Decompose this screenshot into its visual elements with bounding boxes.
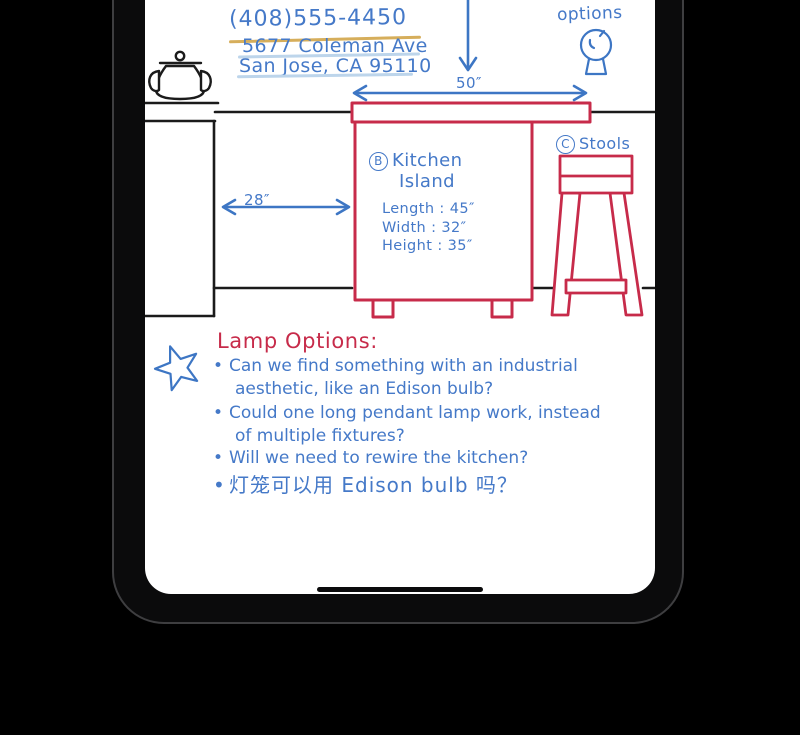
star-icon	[155, 346, 197, 390]
island-height: Height : 35″	[382, 237, 475, 256]
note-text: of multiple fixtures?	[235, 426, 405, 446]
island-width: Width : 32″	[382, 219, 475, 238]
stools-label: CStools	[556, 134, 630, 154]
bullet-marker: •	[213, 448, 229, 468]
stool-sketch	[552, 156, 642, 315]
island-label: BKitchen Island	[369, 150, 462, 192]
island-tag: B	[369, 152, 388, 171]
note-text: Will we need to rewire the kitchen?	[229, 448, 528, 468]
note-text: Could one long pendant lamp work, instea…	[229, 403, 601, 423]
lamp-note-line: •Could one long pendant lamp work, inste…	[213, 403, 601, 423]
stools-label-text: Stools	[579, 134, 630, 153]
lamp-note-line: •灯笼可以用 Edison bulb 吗？	[213, 469, 518, 498]
lightbulb-icon	[581, 30, 611, 74]
width-50-label: 50″	[456, 74, 482, 92]
bullet-marker: •	[213, 473, 229, 497]
lamp-note-line: •Can we find something with an industria…	[213, 356, 578, 376]
stools-tag: C	[556, 135, 575, 154]
note-text: aesthetic, like an Edison bulb?	[235, 379, 493, 399]
island-title-line2: Island	[399, 171, 462, 192]
lamp-note-line: aesthetic, like an Edison bulb?	[213, 379, 493, 399]
bullet-marker: •	[213, 403, 229, 423]
gap-28-label: 28″	[244, 191, 270, 209]
note-canvas[interactable]: (408)555-4450 5677 Coleman Ave San Jose,…	[145, 0, 655, 594]
lamp-note-line: of multiple fixtures?	[213, 426, 405, 446]
note-text: 灯笼可以用 Edison bulb 吗？	[229, 473, 518, 497]
home-indicator[interactable]	[317, 587, 483, 592]
phone-number: (408)555-4450	[229, 5, 407, 32]
island-dimensions: Length : 45″ Width : 32″ Height : 35″	[382, 200, 475, 256]
island-length: Length : 45″	[382, 200, 475, 219]
page: (408)555-4450 5677 Coleman Ave San Jose,…	[0, 0, 800, 735]
lamp-note-line: •Will we need to rewire the kitchen?	[213, 448, 528, 468]
options-label: options	[557, 3, 623, 25]
island-title-line1: Kitchen	[392, 150, 462, 171]
teapot-icon	[149, 52, 210, 99]
note-text: Can we find something with an industrial	[229, 356, 578, 376]
bullet-marker: •	[213, 356, 229, 376]
lamp-options-heading: Lamp Options:	[217, 329, 378, 353]
sketch-layer	[145, 0, 655, 594]
